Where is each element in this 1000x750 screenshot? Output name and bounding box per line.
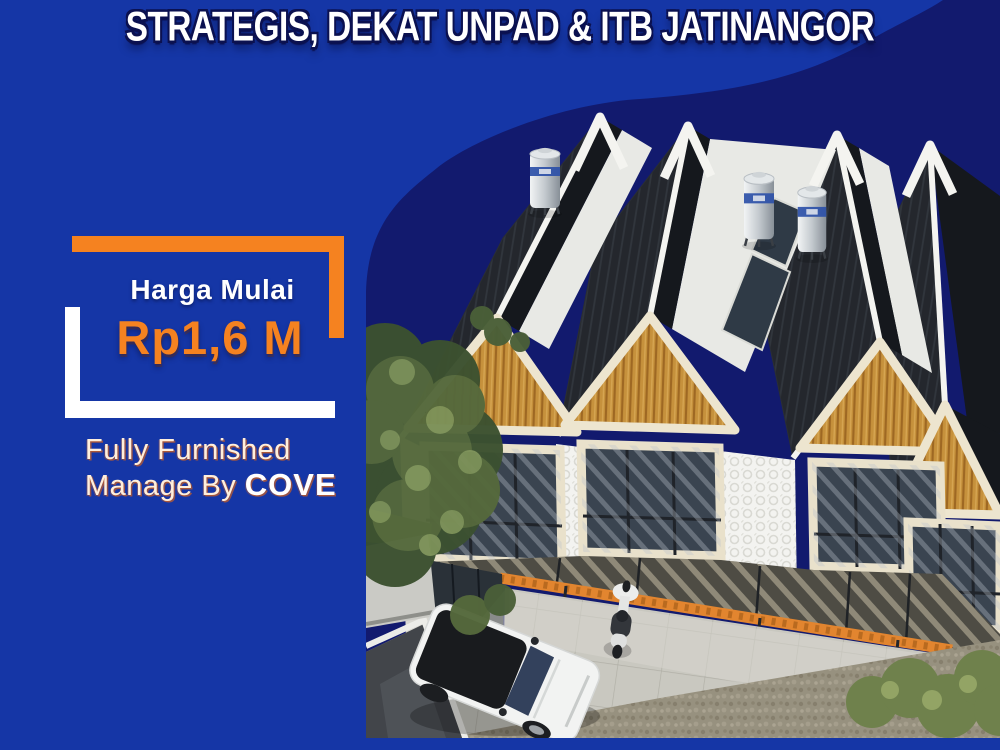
features-text: Fully Furnished Manage By COVE <box>85 434 337 504</box>
feature-managed: Manage By COVE <box>85 467 337 503</box>
poster-canvas: STRATEGIS, DEKAT UNPAD & ITB JATINANGOR … <box>0 0 1000 750</box>
price-value: Rp1,6 M <box>85 310 335 365</box>
price-label: Harga Mulai <box>105 274 320 306</box>
window-box <box>581 444 721 556</box>
brand-name: COVE <box>245 467 337 502</box>
feature-furnished: Fully Furnished <box>85 434 337 467</box>
headline-text: STRATEGIS, DEKAT UNPAD & ITB JATINANGOR <box>10 4 990 52</box>
manage-by-label: Manage By <box>85 470 245 502</box>
price-box: Harga Mulai Rp1,6 M <box>65 236 344 418</box>
water-tank-icon <box>796 186 828 263</box>
water-tank-icon <box>528 148 562 218</box>
water-tank-icon <box>742 172 776 251</box>
